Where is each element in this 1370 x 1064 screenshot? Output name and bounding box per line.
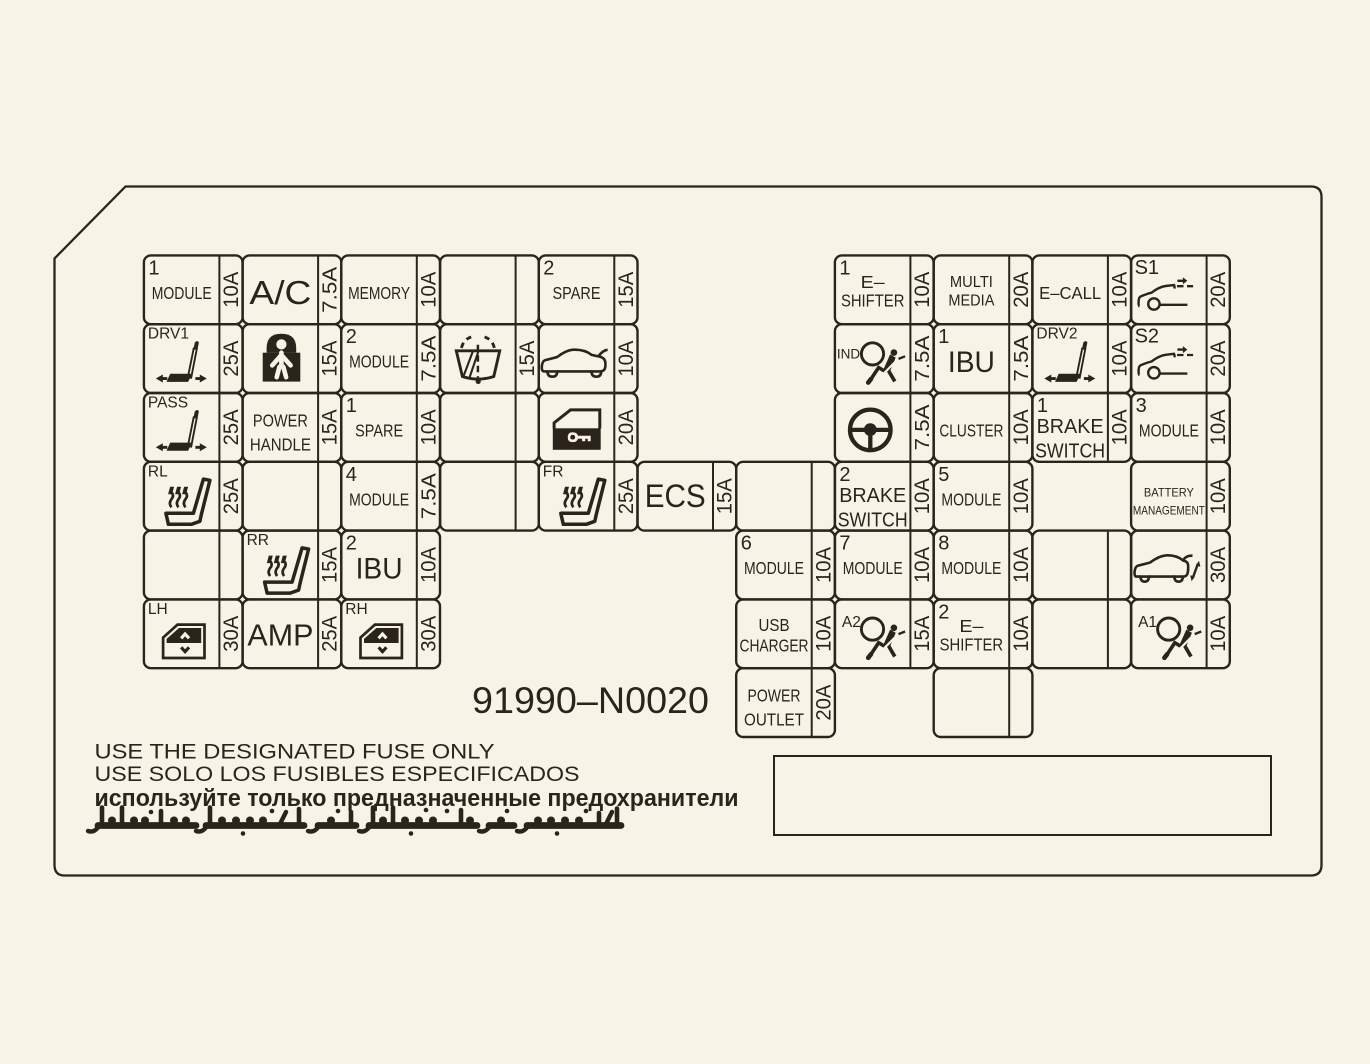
svg-text:15A: 15A — [911, 616, 934, 652]
svg-text:OUTLET: OUTLET — [744, 710, 804, 730]
svg-text:10A: 10A — [417, 547, 440, 583]
svg-text:20A: 20A — [615, 409, 638, 445]
svg-text:10A: 10A — [1109, 341, 1132, 377]
svg-text:25A: 25A — [319, 616, 342, 652]
svg-text:MODULE: MODULE — [843, 558, 903, 578]
svg-text:20A: 20A — [812, 685, 835, 721]
svg-text:10A: 10A — [1010, 478, 1033, 514]
svg-text:10A: 10A — [417, 272, 440, 308]
svg-text:25A: 25A — [220, 478, 243, 514]
svg-text:10A: 10A — [1207, 616, 1230, 652]
svg-text:MULTI: MULTI — [950, 274, 993, 291]
svg-text:10A: 10A — [1109, 272, 1132, 308]
svg-text:10A: 10A — [1010, 616, 1033, 652]
svg-text:MODULE: MODULE — [349, 352, 409, 372]
svg-text:SHIFTER: SHIFTER — [940, 634, 1004, 654]
svg-text:4: 4 — [346, 464, 357, 486]
svg-text:7: 7 — [839, 533, 850, 555]
svg-text:MEMORY: MEMORY — [348, 283, 410, 303]
svg-text:10A: 10A — [417, 409, 440, 445]
svg-text:25A: 25A — [615, 478, 638, 514]
svg-text:10A: 10A — [911, 547, 934, 583]
svg-text:SHIFTER: SHIFTER — [841, 290, 905, 310]
svg-text:10A: 10A — [220, 272, 243, 308]
svg-text:10A: 10A — [812, 547, 835, 583]
svg-text:1: 1 — [1037, 395, 1048, 417]
svg-text:AMP: AMP — [247, 617, 313, 652]
svg-text:USB: USB — [759, 615, 790, 635]
svg-text:30A: 30A — [220, 616, 243, 652]
svg-text:RR: RR — [247, 532, 269, 549]
svg-text:15A: 15A — [319, 409, 342, 445]
svg-text:BRAKE: BRAKE — [839, 485, 906, 507]
svg-text:E–CALL: E–CALL — [1039, 283, 1101, 303]
svg-text:SPARE: SPARE — [355, 421, 403, 441]
svg-text:10A: 10A — [1207, 409, 1230, 445]
svg-text:используйте только предназначе: используйте только предназначенные предо… — [95, 785, 739, 812]
svg-text:7.5A: 7.5A — [1011, 335, 1033, 382]
svg-text:6: 6 — [741, 533, 752, 555]
svg-text:1: 1 — [148, 257, 159, 279]
svg-text:7.5A: 7.5A — [320, 266, 342, 313]
svg-text:1: 1 — [938, 326, 949, 348]
svg-text:DRV2: DRV2 — [1036, 326, 1077, 343]
svg-text:10A: 10A — [615, 341, 638, 377]
svg-text:MODULE: MODULE — [941, 558, 1001, 578]
svg-text:10A: 10A — [1010, 409, 1033, 445]
svg-text:25A: 25A — [220, 341, 243, 377]
svg-text:1: 1 — [839, 257, 850, 279]
svg-text:POWER: POWER — [253, 410, 308, 430]
svg-text:S2: S2 — [1135, 326, 1159, 348]
svg-text:MEDIA: MEDIA — [948, 292, 995, 309]
svg-text:BRAKE: BRAKE — [1037, 416, 1104, 438]
svg-text:A1: A1 — [1138, 614, 1157, 631]
svg-text:RL: RL — [148, 463, 168, 480]
svg-text:BATTERY: BATTERY — [1144, 486, 1194, 500]
svg-text:20A: 20A — [1207, 341, 1230, 377]
svg-text:LH: LH — [148, 601, 168, 618]
svg-text:8: 8 — [938, 533, 949, 555]
svg-text:10A: 10A — [1109, 409, 1132, 445]
svg-text:10A: 10A — [812, 616, 835, 652]
svg-text:3: 3 — [1136, 395, 1147, 417]
svg-text:SWITCH: SWITCH — [1035, 441, 1105, 463]
svg-text:FR: FR — [543, 463, 564, 480]
svg-text:DRV1: DRV1 — [148, 326, 189, 343]
svg-text:CHARGER: CHARGER — [740, 636, 809, 656]
svg-text:IBU: IBU — [948, 346, 995, 379]
svg-text:MODULE: MODULE — [1139, 421, 1199, 441]
svg-text:7.5A: 7.5A — [418, 335, 440, 382]
svg-text:MODULE: MODULE — [941, 489, 1001, 509]
svg-text:A/C: A/C — [249, 274, 311, 311]
svg-text:CLUSTER: CLUSTER — [939, 421, 1003, 441]
svg-text:MANAGEMENT: MANAGEMENT — [1133, 503, 1206, 517]
svg-text:IND: IND — [837, 347, 861, 362]
svg-text:SWITCH: SWITCH — [838, 509, 908, 531]
svg-text:IBU: IBU — [356, 553, 403, 586]
svg-text:10A: 10A — [911, 272, 934, 308]
svg-text:2: 2 — [938, 601, 949, 623]
svg-text:HANDLE: HANDLE — [250, 434, 311, 454]
svg-text:1: 1 — [346, 395, 357, 417]
svg-text:7.5A: 7.5A — [418, 472, 440, 519]
svg-text:E–: E– — [959, 616, 983, 636]
svg-text:2: 2 — [543, 257, 554, 279]
svg-text:SPARE: SPARE — [553, 283, 601, 303]
svg-text:5: 5 — [938, 464, 949, 486]
svg-text:E–: E– — [861, 272, 885, 292]
svg-text:30A: 30A — [417, 616, 440, 652]
svg-text:2: 2 — [346, 533, 357, 555]
svg-text:7.5A: 7.5A — [912, 404, 934, 451]
svg-text:MODULE: MODULE — [349, 489, 409, 509]
svg-text:7.5A: 7.5A — [912, 335, 934, 382]
svg-text:PASS: PASS — [148, 395, 188, 412]
svg-text:25A: 25A — [220, 409, 243, 445]
svg-text:RH: RH — [345, 601, 367, 618]
svg-text:10A: 10A — [1010, 547, 1033, 583]
svg-text:ECS: ECS — [645, 478, 706, 514]
svg-text:30A: 30A — [1207, 547, 1230, 583]
svg-text:15A: 15A — [714, 478, 737, 514]
svg-text:15A: 15A — [516, 341, 539, 377]
svg-text:USE THE DESIGNATED FUSE ONLY: USE THE DESIGNATED FUSE ONLY — [95, 740, 495, 764]
svg-text:15A: 15A — [319, 547, 342, 583]
svg-text:2: 2 — [346, 326, 357, 348]
svg-text:MODULE: MODULE — [744, 558, 804, 578]
svg-text:20A: 20A — [1207, 272, 1230, 308]
svg-text:POWER: POWER — [748, 686, 801, 706]
svg-text:15A: 15A — [615, 272, 638, 308]
svg-text:20A: 20A — [1010, 272, 1033, 308]
svg-text:10A: 10A — [1207, 478, 1230, 514]
svg-text:10A: 10A — [911, 478, 934, 514]
svg-text:91990–N0020: 91990–N0020 — [472, 680, 709, 721]
svg-text:2: 2 — [839, 464, 850, 486]
svg-text:MODULE: MODULE — [152, 283, 212, 303]
svg-text:A2: A2 — [842, 614, 861, 631]
svg-text:USE SOLO LOS FUSIBLES ESPECIFI: USE SOLO LOS FUSIBLES ESPECIFICADOS — [95, 762, 580, 786]
svg-text:S1: S1 — [1135, 257, 1159, 279]
svg-text:15A: 15A — [319, 341, 342, 377]
